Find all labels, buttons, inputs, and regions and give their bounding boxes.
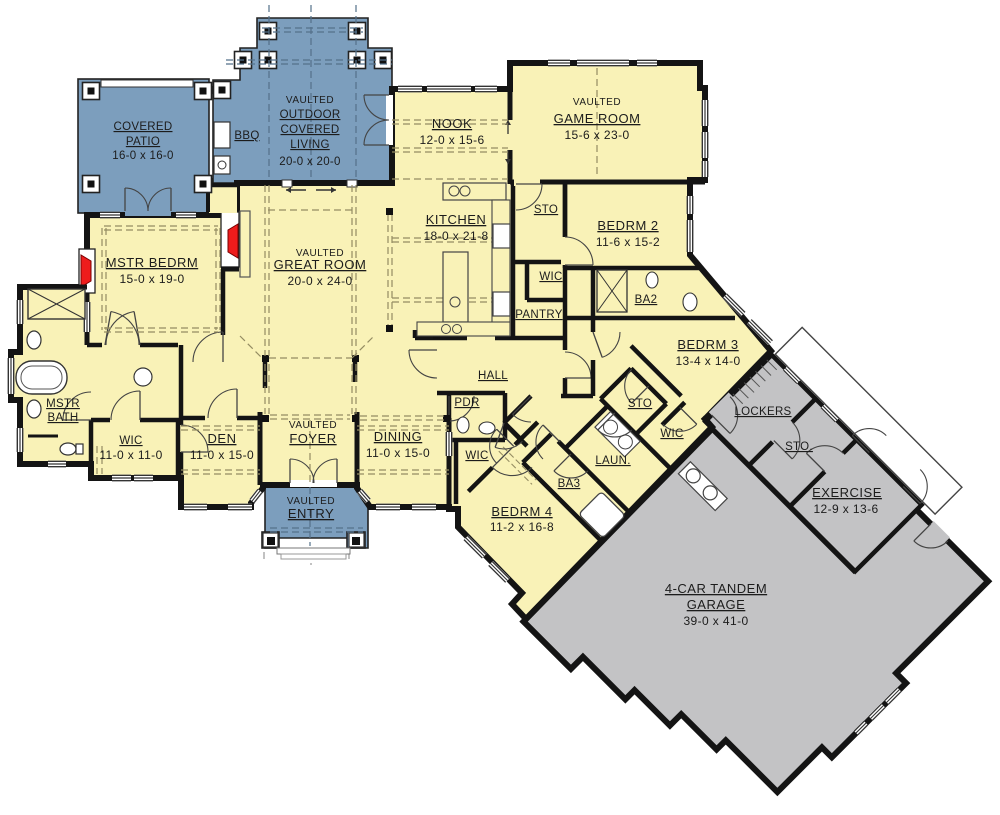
svg-text:PDR: PDR	[454, 397, 479, 409]
svg-text:11-0 x 15-0: 11-0 x 15-0	[190, 448, 254, 462]
svg-text:STO: STO	[628, 398, 652, 410]
svg-text:GAME ROOM: GAME ROOM	[554, 111, 641, 126]
svg-text:11-0 x 11-0: 11-0 x 11-0	[99, 448, 162, 462]
svg-text:MSTR BEDRM: MSTR BEDRM	[106, 255, 198, 270]
svg-text:WIC: WIC	[660, 428, 683, 440]
svg-text:PANTRY: PANTRY	[515, 309, 562, 321]
svg-text:12-0 x 15-6: 12-0 x 15-6	[419, 133, 484, 147]
svg-text:BEDRM 3: BEDRM 3	[677, 337, 738, 352]
svg-text:WIC: WIC	[539, 271, 562, 283]
svg-text:20-0 x 24-0: 20-0 x 24-0	[287, 274, 352, 288]
svg-text:12-9 x 13-6: 12-9 x 13-6	[813, 502, 878, 516]
svg-text:VAULTED: VAULTED	[573, 97, 621, 108]
svg-text:11-0 x 15-0: 11-0 x 15-0	[366, 446, 430, 460]
svg-text:BATH: BATH	[47, 412, 78, 424]
svg-text:11-2 x 16-8: 11-2 x 16-8	[490, 520, 554, 534]
svg-text:11-6 x 15-2: 11-6 x 15-2	[596, 235, 660, 249]
svg-text:20-0 x 20-0: 20-0 x 20-0	[279, 156, 340, 168]
svg-text:DEN: DEN	[208, 431, 237, 446]
svg-text:ENTRY: ENTRY	[288, 506, 334, 521]
svg-text:18-0 x 21-8: 18-0 x 21-8	[423, 229, 488, 243]
svg-text:BEDRM 2: BEDRM 2	[597, 218, 658, 233]
svg-text:WIC: WIC	[465, 450, 488, 462]
svg-text:COVERED: COVERED	[114, 121, 173, 133]
svg-text:PATIO: PATIO	[126, 136, 160, 148]
svg-text:WIC: WIC	[119, 435, 142, 447]
svg-text:OUTDOOR: OUTDOOR	[280, 109, 341, 121]
svg-text:VAULTED: VAULTED	[286, 95, 334, 106]
svg-text:BBQ: BBQ	[234, 130, 259, 142]
svg-text:15-6 x 23-0: 15-6 x 23-0	[564, 128, 629, 142]
svg-text:LAUN.: LAUN.	[595, 455, 630, 467]
svg-text:VAULTED: VAULTED	[289, 420, 337, 431]
svg-text:LOCKERS: LOCKERS	[734, 406, 791, 418]
svg-text:39-0 x 41-0: 39-0 x 41-0	[683, 614, 748, 628]
svg-text:16-0 x 16-0: 16-0 x 16-0	[112, 150, 173, 162]
svg-text:GARAGE: GARAGE	[687, 597, 746, 612]
svg-text:13-4 x 14-0: 13-4 x 14-0	[675, 354, 740, 368]
svg-text:EXERCISE: EXERCISE	[812, 485, 882, 500]
svg-text:4-CAR TANDEM: 4-CAR TANDEM	[665, 581, 767, 596]
svg-text:STO.: STO.	[785, 441, 813, 453]
svg-text:15-0 x 19-0: 15-0 x 19-0	[119, 272, 184, 286]
svg-text:BA2: BA2	[635, 294, 658, 306]
svg-text:KITCHEN: KITCHEN	[426, 212, 487, 227]
svg-text:LIVING: LIVING	[290, 139, 330, 151]
svg-text:FOYER: FOYER	[289, 431, 336, 446]
svg-text:BA3: BA3	[558, 478, 581, 490]
svg-text:HALL: HALL	[478, 370, 508, 382]
svg-text:GREAT ROOM: GREAT ROOM	[274, 257, 367, 272]
svg-text:MSTR: MSTR	[46, 398, 80, 410]
svg-text:BEDRM 4: BEDRM 4	[491, 504, 552, 519]
svg-text:COVERED: COVERED	[281, 124, 340, 136]
svg-text:STO: STO	[534, 204, 558, 216]
svg-text:NOOK: NOOK	[432, 116, 472, 131]
svg-text:DINING: DINING	[374, 429, 423, 444]
